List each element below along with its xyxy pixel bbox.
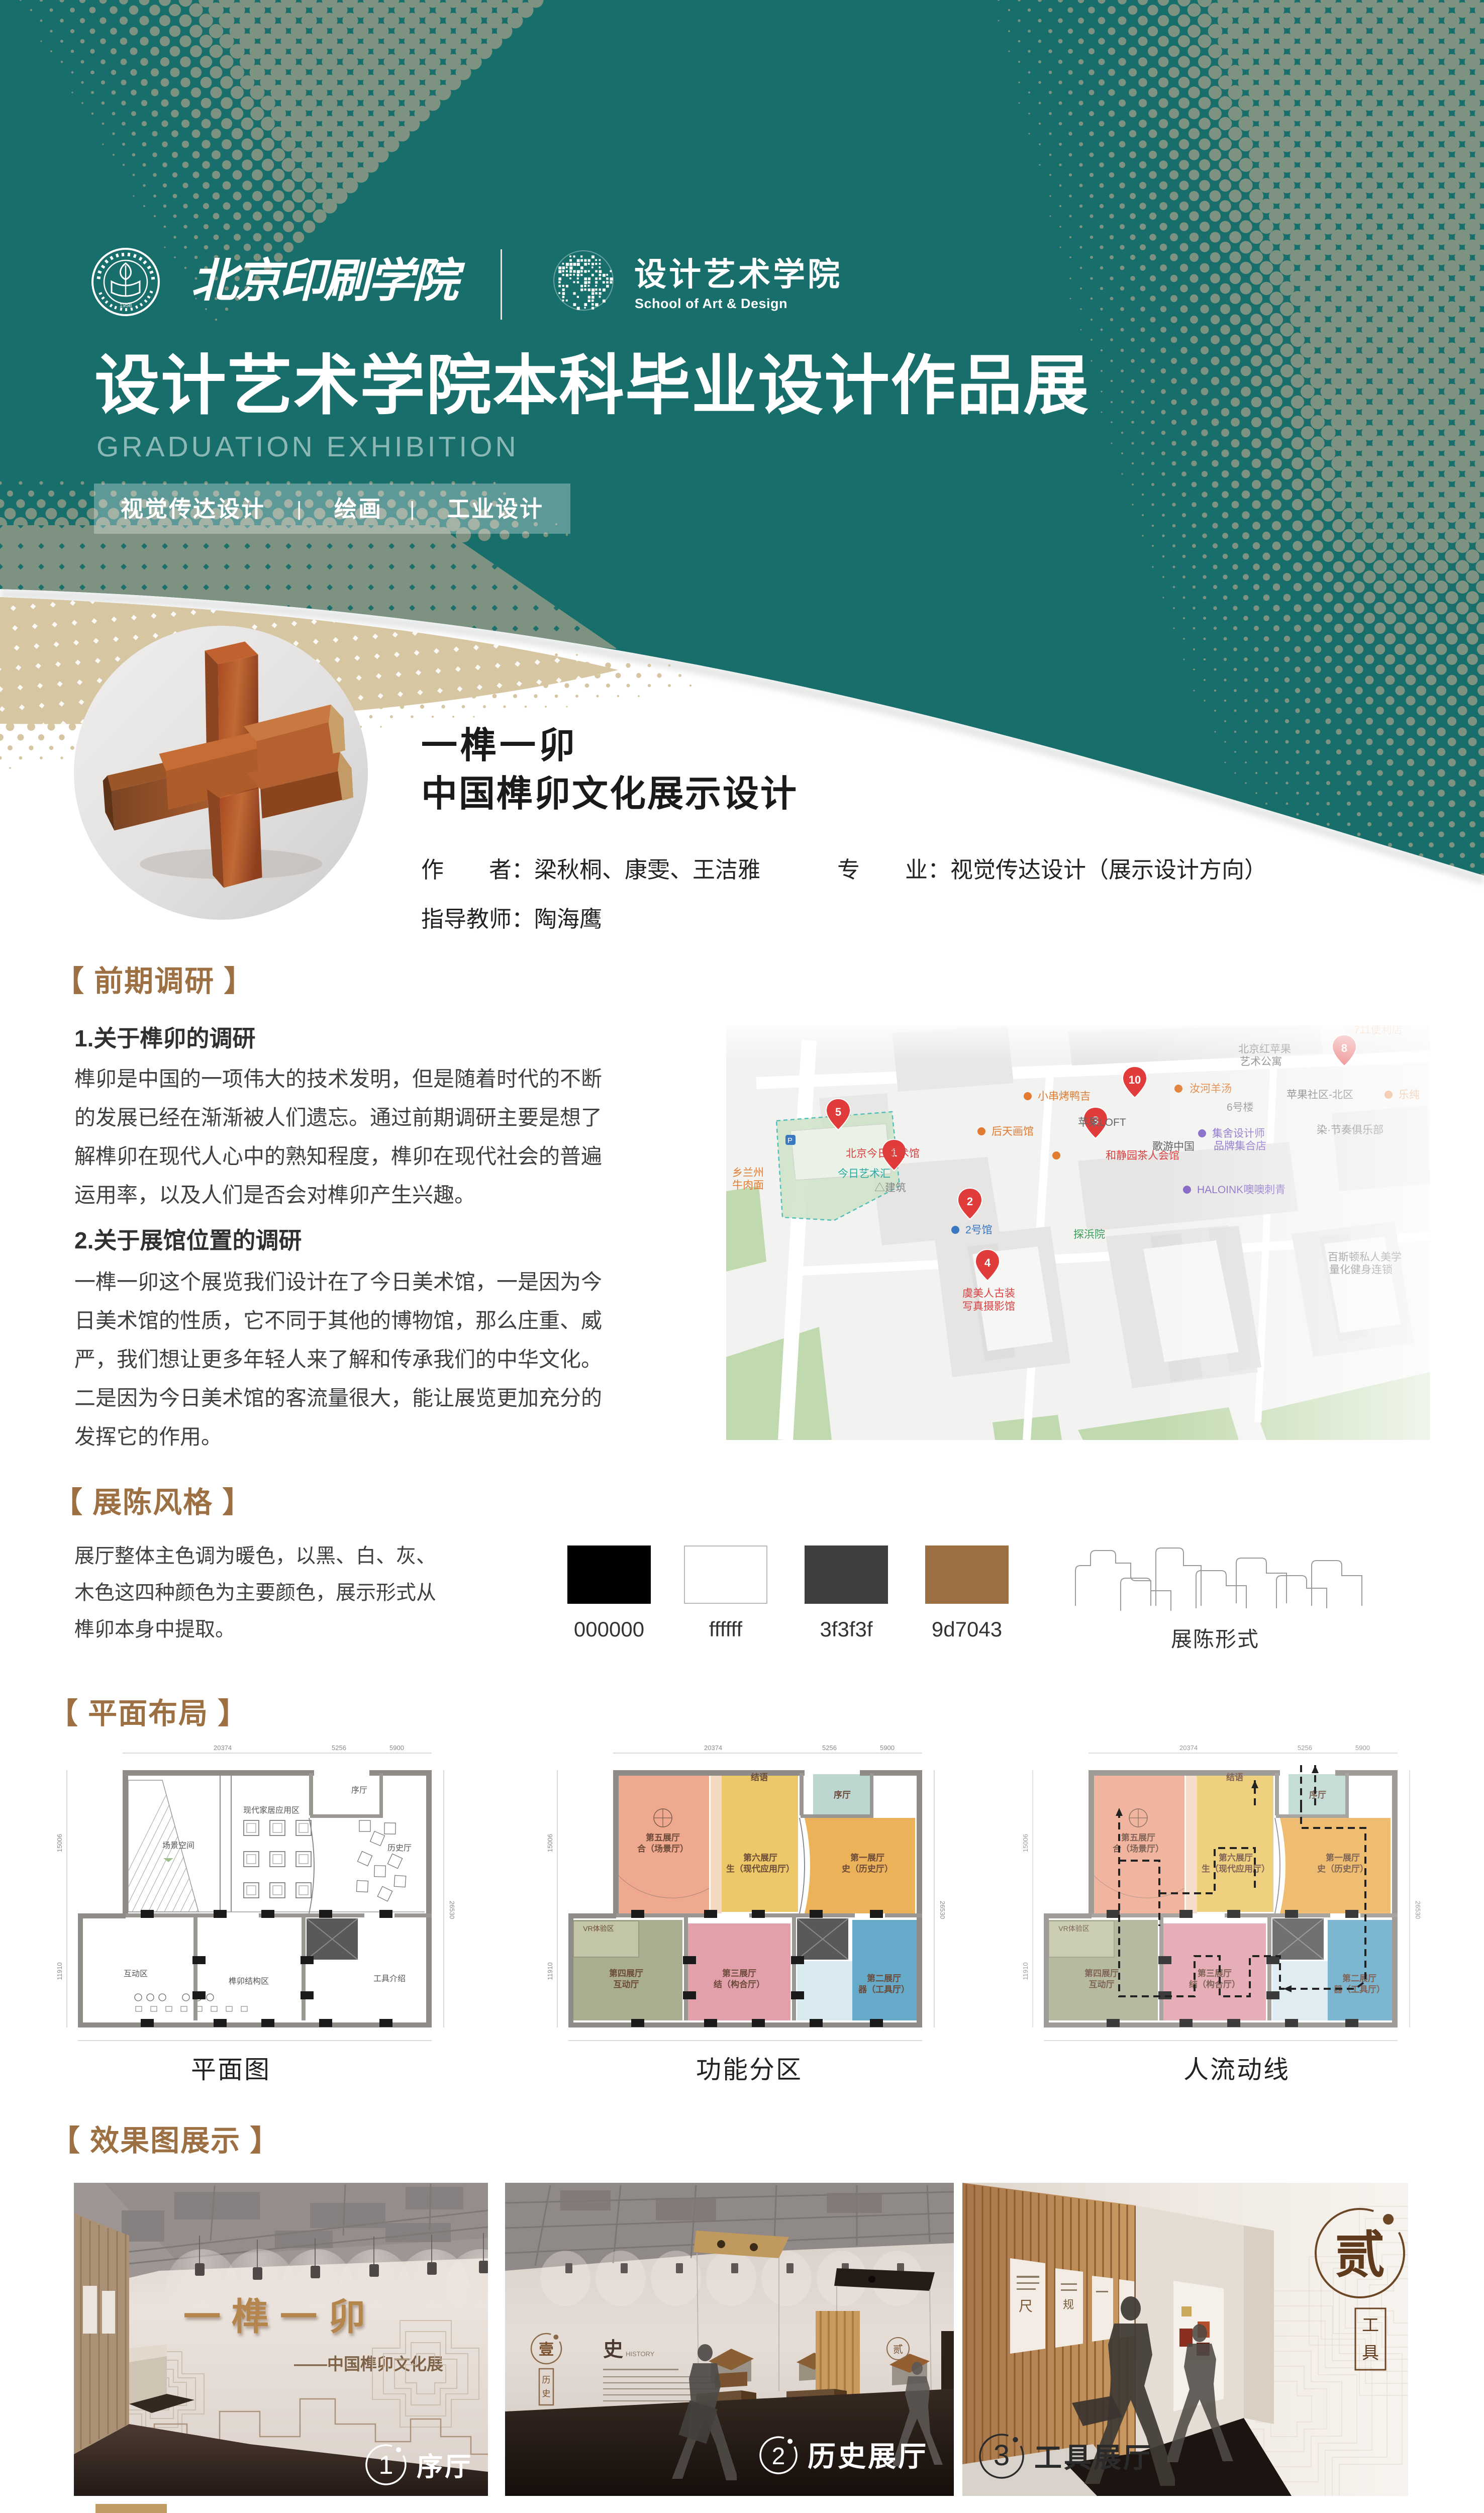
svg-text:第四展厅: 第四展厅	[609, 1968, 643, 1978]
svg-text:第二展厅: 第二展厅	[867, 1973, 901, 1983]
svg-text:视觉传达设计: 视觉传达设计	[121, 496, 265, 522]
svg-text:序厅: 序厅	[1309, 1790, 1326, 1800]
svg-text:2: 2	[772, 2443, 785, 2470]
svg-text:历: 历	[542, 2375, 551, 2385]
svg-text:GRADUATION EXHIBITION: GRADUATION EXHIBITION	[96, 431, 519, 463]
svg-text:壹: 壹	[539, 2342, 554, 2358]
svg-text:第四展厅: 第四展厅	[1084, 1968, 1119, 1978]
svg-text:3: 3	[994, 2439, 1010, 2472]
svg-text:11910: 11910	[1022, 1962, 1029, 1980]
svg-text:HISTORY: HISTORY	[626, 2350, 655, 2358]
svg-text:15006: 15006	[1022, 1834, 1029, 1852]
svg-text:第五展厅: 第五展厅	[646, 1832, 680, 1843]
svg-text:结语: 结语	[1226, 1772, 1243, 1782]
svg-text:一榫一卯: 一榫一卯	[183, 2296, 376, 2338]
svg-text:5256: 5256	[1298, 1744, 1312, 1752]
svg-text:互动厅: 互动厅	[1089, 1980, 1115, 1989]
svg-text:第二展厅: 第二展厅	[1342, 1973, 1376, 1983]
svg-text:工具介绍: 工具介绍	[373, 1974, 406, 1983]
svg-text:互动区: 互动区	[124, 1969, 148, 1978]
svg-text:School of Art & Design: School of Art & Design	[635, 296, 787, 311]
svg-text:规: 规	[1063, 2298, 1074, 2311]
svg-text:绘画: 绘画	[334, 496, 382, 522]
svg-text:设计艺术学院: 设计艺术学院	[634, 256, 842, 293]
svg-text:20374: 20374	[704, 1744, 722, 1752]
svg-text:序厅: 序厅	[351, 1786, 367, 1795]
svg-text:20374: 20374	[214, 1744, 232, 1752]
svg-text:序厅: 序厅	[417, 2453, 473, 2482]
svg-text:|: |	[296, 498, 302, 520]
svg-text:器（工具厅）: 器（工具厅）	[858, 1984, 910, 1994]
svg-text:结（构合厅）: 结（构合厅）	[714, 1979, 765, 1989]
svg-text:生（现代应用厅）: 生（现代应用厅）	[726, 1864, 795, 1874]
svg-text:5900: 5900	[1355, 1744, 1370, 1752]
svg-text:第六展厅: 第六展厅	[1219, 1853, 1253, 1863]
svg-text:15006: 15006	[546, 1834, 554, 1852]
svg-text:史: 史	[542, 2389, 551, 2398]
svg-text:26530: 26530	[448, 1901, 455, 1919]
svg-text:贰: 贰	[893, 2344, 903, 2355]
svg-text:26530: 26530	[939, 1901, 945, 1919]
svg-text:现代家居应用区: 现代家居应用区	[243, 1805, 300, 1815]
svg-text:序厅: 序厅	[834, 1790, 851, 1800]
svg-text:工具展厅: 工具展厅	[1034, 2442, 1153, 2473]
svg-text:榫卯结构区: 榫卯结构区	[229, 1977, 269, 1986]
svg-text:第六展厅: 第六展厅	[743, 1853, 777, 1863]
svg-text:互动厅: 互动厅	[614, 1980, 639, 1989]
svg-text:结（构合厅）: 结（构合厅）	[1189, 1979, 1240, 1989]
svg-text:历史展厅: 历史展厅	[808, 2441, 928, 2472]
svg-text:工业设计: 工业设计	[447, 496, 544, 522]
svg-text:史（历史厅）: 史（历史厅）	[842, 1864, 893, 1874]
svg-text:VR体验区: VR体验区	[583, 1924, 614, 1932]
svg-text:第五展厅: 第五展厅	[1121, 1832, 1155, 1843]
svg-text:设计艺术学院本科毕业设计作品展: 设计艺术学院本科毕业设计作品展	[94, 349, 1090, 422]
svg-text:5900: 5900	[389, 1744, 404, 1752]
svg-text:场景空间: 场景空间	[162, 1841, 194, 1850]
svg-text:史（历史厅）: 史（历史厅）	[1317, 1864, 1368, 1874]
svg-text:生（现代应用厅）: 生（现代应用厅）	[1202, 1864, 1270, 1874]
svg-text:5256: 5256	[822, 1744, 837, 1752]
svg-text:第三展厅: 第三展厅	[1198, 1968, 1232, 1978]
svg-text:——中国榫卯文化展: ——中国榫卯文化展	[294, 2355, 443, 2373]
svg-text:5256: 5256	[332, 1744, 346, 1752]
svg-text:合（场景厅）: 合（场景厅）	[1113, 1844, 1164, 1854]
svg-text:史: 史	[603, 2339, 623, 2361]
svg-text:|: |	[410, 498, 415, 520]
svg-text:5900: 5900	[880, 1744, 895, 1752]
svg-text:结语: 结语	[751, 1772, 768, 1782]
svg-text:26530: 26530	[1414, 1901, 1421, 1919]
svg-text:合（场景厅）: 合（场景厅）	[637, 1844, 688, 1854]
svg-text:VR体验区: VR体验区	[1058, 1924, 1089, 1932]
svg-text:20374: 20374	[1179, 1744, 1198, 1752]
svg-text:第一展厅: 第一展厅	[1326, 1853, 1360, 1863]
svg-text:1: 1	[379, 2451, 393, 2480]
svg-text:15006: 15006	[56, 1834, 63, 1852]
svg-text:第三展厅: 第三展厅	[722, 1968, 756, 1978]
svg-text:北京印刷学院: 北京印刷学院	[191, 255, 465, 307]
svg-text:尺: 尺	[1019, 2298, 1033, 2314]
svg-text:第一展厅: 第一展厅	[850, 1853, 884, 1863]
svg-text:历史厅: 历史厅	[387, 1844, 412, 1853]
svg-text:11910: 11910	[56, 1962, 63, 1980]
svg-text:11910: 11910	[546, 1962, 554, 1980]
